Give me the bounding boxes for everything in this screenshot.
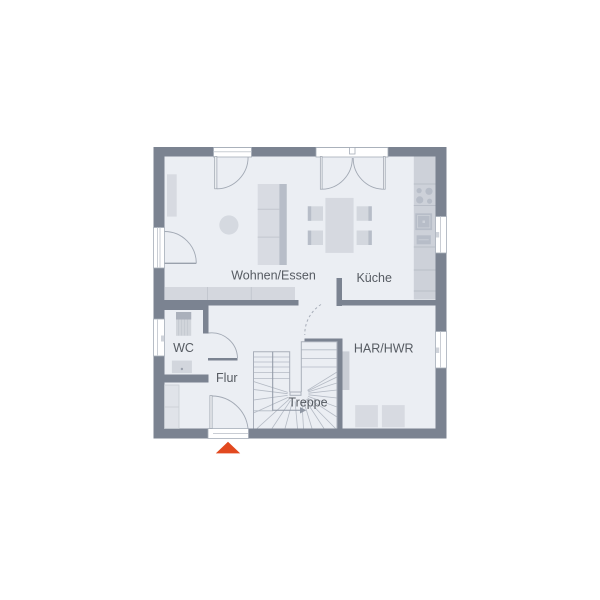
svg-text:Küche: Küche (356, 271, 391, 285)
svg-text:HAR/HWR: HAR/HWR (354, 342, 414, 356)
svg-text:Treppe: Treppe (288, 396, 327, 410)
svg-text:Wohnen/Essen: Wohnen/Essen (231, 269, 316, 283)
svg-text:WC: WC (173, 341, 194, 355)
svg-text:Flur: Flur (216, 371, 238, 385)
